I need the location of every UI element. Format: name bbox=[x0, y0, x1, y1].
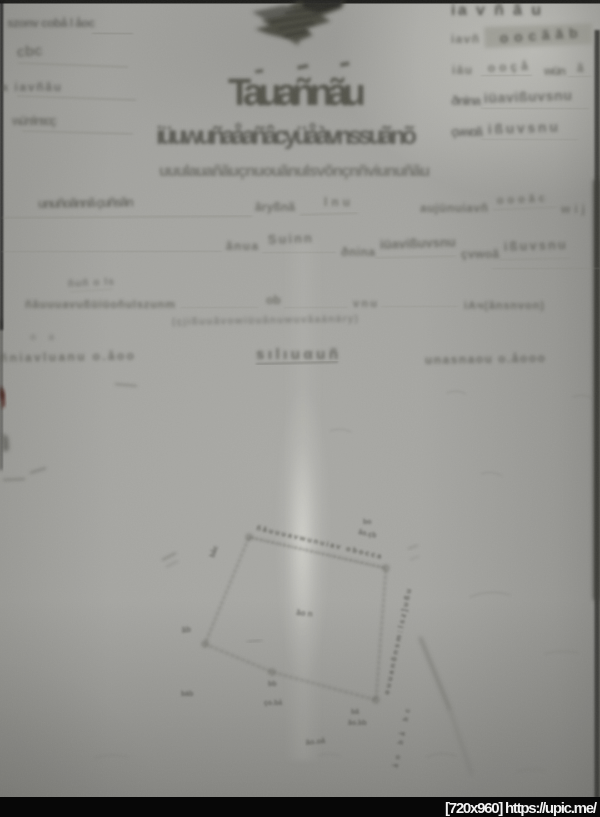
svg-text:[720x960] https://upic.me/: [720x960] https://upic.me/ bbox=[445, 800, 598, 817]
